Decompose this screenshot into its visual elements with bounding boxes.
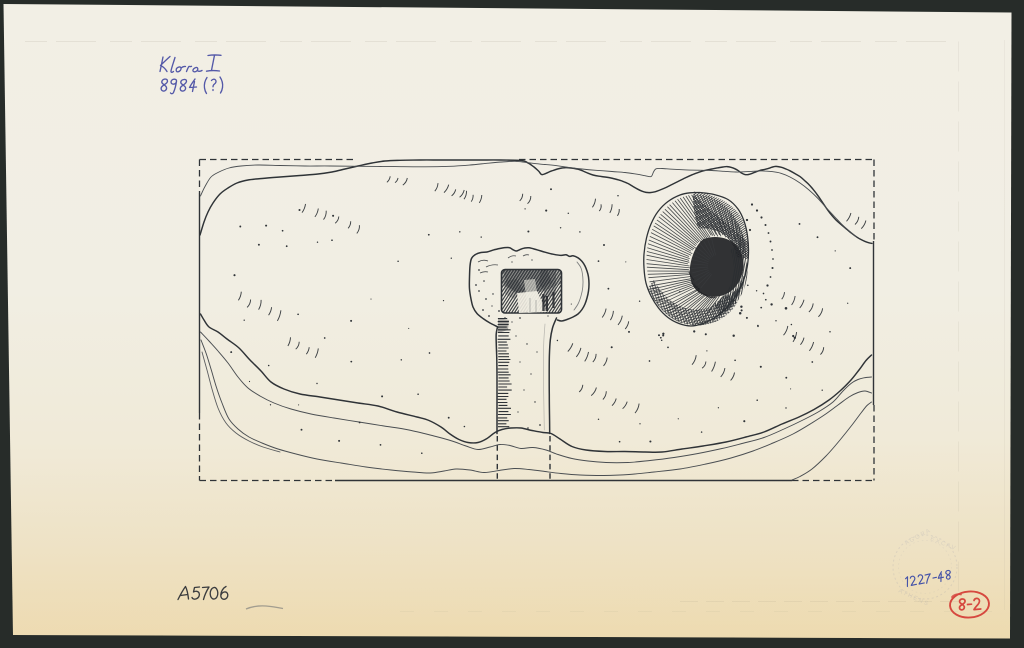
- svg-text:A G O R A: A G O R A: [904, 528, 931, 546]
- svg-text:E X C A V: E X C A V: [929, 536, 956, 551]
- svg-text:A T H E N S: A T H E N S: [897, 588, 929, 607]
